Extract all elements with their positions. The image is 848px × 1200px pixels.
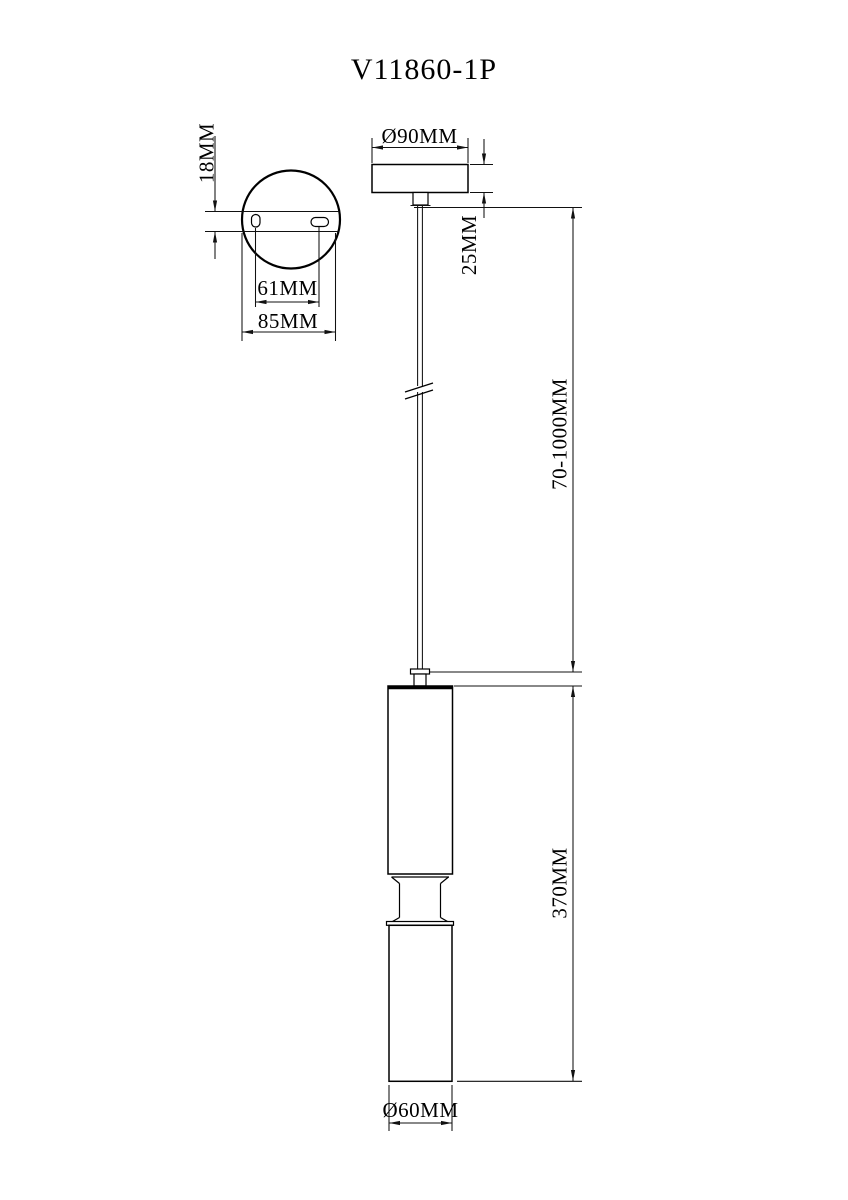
arrow-down-icon <box>571 1070 575 1081</box>
arrow-up-icon <box>482 193 486 204</box>
canopy-diameter-label: Ø90MM <box>381 124 457 148</box>
suspension-cable <box>405 206 433 669</box>
plate-width-label: 85MM <box>258 309 318 333</box>
connector-flange <box>411 669 430 674</box>
arrow-down-icon <box>213 201 217 212</box>
ceiling-canopy <box>372 165 468 193</box>
arrow-right-icon <box>457 145 468 149</box>
arrow-up-icon <box>571 686 575 697</box>
dim-plate-thickness: 18MM <box>195 123 219 259</box>
cable-connector <box>411 669 430 686</box>
front-view-pendant: Ø90MM 25MM <box>372 124 582 1131</box>
lower-glass-tube <box>389 925 452 1081</box>
shade-diameter-label: Ø60MM <box>382 1098 458 1122</box>
chamfer-line <box>392 877 400 884</box>
arrow-up-icon <box>571 208 575 219</box>
cable-break-mark <box>405 390 433 399</box>
connector-body <box>414 674 426 686</box>
canopy-stem <box>413 193 428 206</box>
arrow-down-icon <box>482 154 486 165</box>
arrow-left-icon <box>242 330 253 334</box>
fixture-height-label: 370MM <box>548 847 572 918</box>
top-view-ceiling-plate: 18MM 61MM 85MM <box>195 123 341 341</box>
dim-fixture-height: 370MM <box>454 686 582 1081</box>
dim-hole-spacing: 61MM <box>256 227 320 307</box>
lamp-body <box>387 686 454 1081</box>
dim-shade-diameter: Ø60MM <box>382 1085 458 1131</box>
cable-break-mark <box>405 383 433 392</box>
arrow-up-icon <box>213 232 217 243</box>
screw-slot-left <box>252 215 261 228</box>
drawing-title: V11860-1P <box>351 53 497 86</box>
arrow-down-icon <box>571 661 575 672</box>
pendant-lamp-dimension-drawing: V11860-1P 18MM 61MM <box>0 0 848 1200</box>
canopy-height-label: 25MM <box>457 215 481 275</box>
chamfer-line <box>441 877 449 884</box>
hole-spacing-label: 61MM <box>257 276 317 300</box>
suspension-range-label: 70-1000MM <box>548 378 572 490</box>
plate-thickness-label: 18MM <box>195 123 219 183</box>
upper-cylinder <box>388 686 453 874</box>
arrow-right-icon <box>308 300 319 304</box>
dim-canopy-diameter: Ø90MM <box>372 124 468 163</box>
technical-drawing-page: V11860-1P 18MM 61MM <box>0 0 848 1200</box>
dim-suspension-range: 70-1000MM <box>414 208 582 673</box>
arrow-left-icon <box>256 300 267 304</box>
screw-slot-right <box>311 218 329 227</box>
arrow-right-icon <box>325 330 336 334</box>
